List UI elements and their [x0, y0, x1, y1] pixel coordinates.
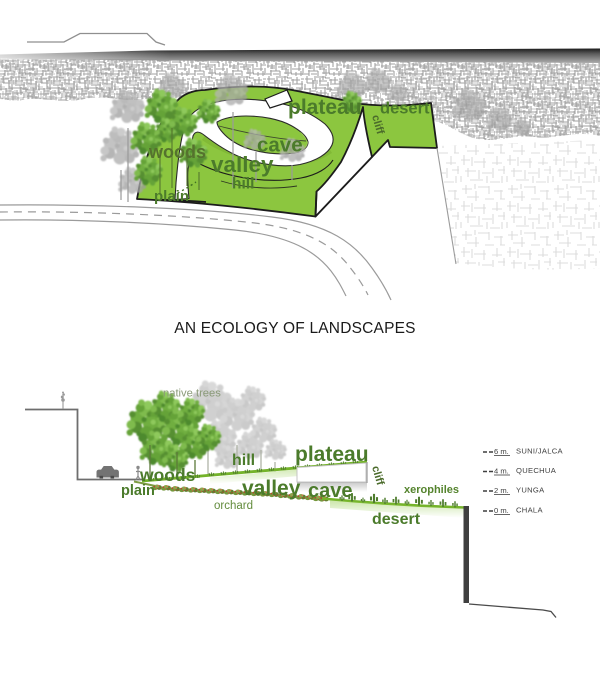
svg-text:plateau: plateau — [295, 443, 369, 466]
svg-text:4 m.: 4 m. — [494, 467, 509, 476]
svg-text:plateau: plateau — [288, 96, 362, 119]
svg-text:6 m.: 6 m. — [494, 447, 509, 456]
svg-text:plain: plain — [154, 188, 189, 205]
svg-text:hill: hill — [232, 176, 254, 193]
svg-text:woods: woods — [139, 465, 196, 485]
svg-text:AN ECOLOGY OF LANDSCAPES: AN ECOLOGY OF LANDSCAPES — [174, 320, 415, 337]
svg-text:QUECHUA: QUECHUA — [516, 466, 557, 475]
svg-text:valley: valley — [211, 152, 274, 177]
svg-text:woods: woods — [148, 142, 206, 162]
svg-text:hill: hill — [232, 452, 255, 469]
svg-text:0 m.: 0 m. — [494, 506, 509, 515]
svg-text:cave: cave — [308, 480, 353, 502]
svg-text:desert: desert — [372, 511, 421, 528]
svg-text:desert: desert — [380, 100, 430, 118]
svg-text:CHALA: CHALA — [516, 506, 543, 515]
svg-text:native trees: native trees — [163, 388, 221, 400]
svg-text:plain: plain — [121, 483, 155, 499]
svg-text:orchard: orchard — [214, 500, 253, 512]
svg-text:YUNGA: YUNGA — [516, 486, 545, 495]
svg-text:SUNI/JALCA: SUNI/JALCA — [516, 447, 564, 456]
svg-text:2 m.: 2 m. — [494, 486, 509, 495]
svg-text:xerophiles: xerophiles — [404, 484, 459, 496]
svg-text:valley: valley — [242, 477, 301, 500]
